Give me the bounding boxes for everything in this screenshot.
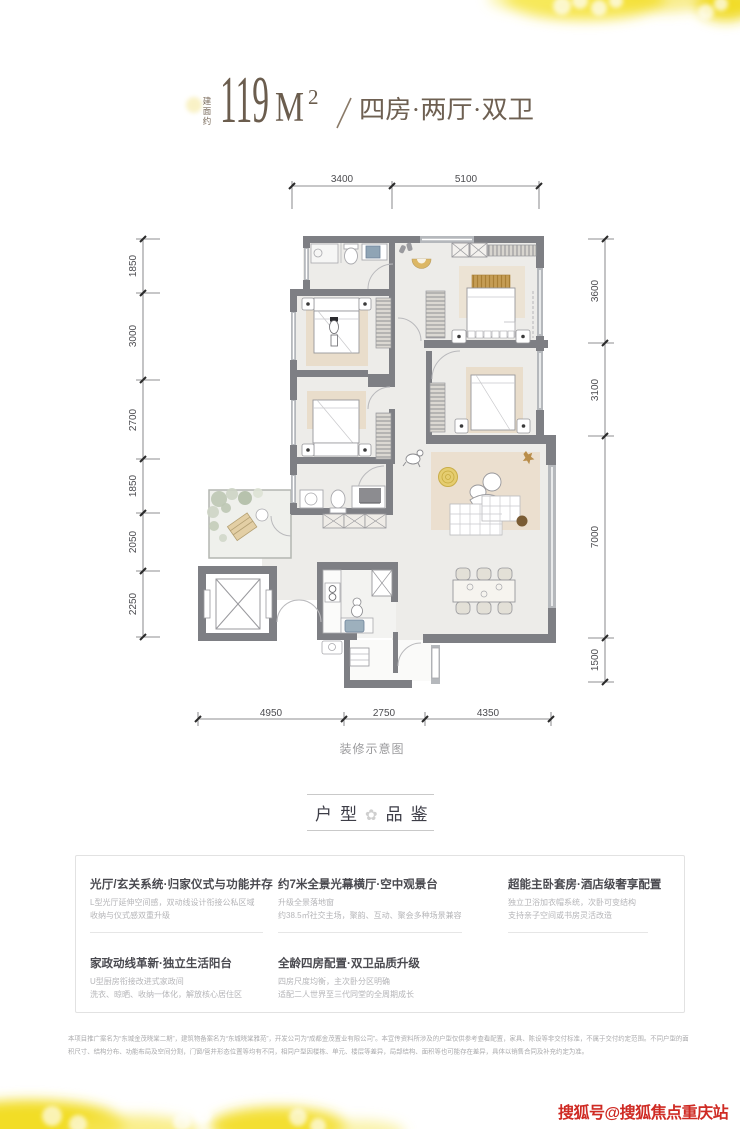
svg-text:2: 2 [308,85,319,109]
svg-text:7000: 7000 [590,525,601,548]
svg-text:3400: 3400 [331,174,354,185]
svg-text:2700: 2700 [128,408,139,431]
svg-text:四房·两厅·双卫: 四房·两厅·双卫 [359,96,534,124]
svg-text:2750: 2750 [373,708,396,719]
svg-text:1850: 1850 [128,254,139,277]
svg-text:1850: 1850 [128,474,139,497]
svg-text:5100: 5100 [455,174,478,185]
svg-text:4350: 4350 [477,708,500,719]
svg-text:3100: 3100 [590,378,601,401]
svg-text:约: 约 [203,116,212,126]
svg-text:建: 建 [203,96,212,106]
svg-text:M: M [275,85,304,131]
svg-text:3600: 3600 [590,279,601,302]
svg-text:119: 119 [220,63,269,137]
svg-text:4950: 4950 [260,708,283,719]
svg-text:装修示意图: 装修示意图 [339,741,404,756]
svg-text:2050: 2050 [128,530,139,553]
svg-text:面: 面 [203,106,212,116]
svg-text:3000: 3000 [128,324,139,347]
svg-text:2250: 2250 [128,592,139,615]
svg-text:1500: 1500 [590,648,601,671]
